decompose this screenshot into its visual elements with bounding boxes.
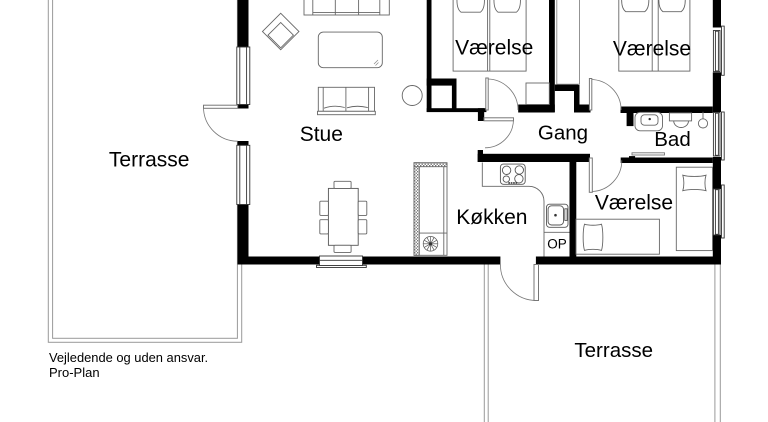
svg-text:Bad: Bad xyxy=(654,128,690,151)
svg-text:Værelse: Værelse xyxy=(595,191,673,214)
svg-text:OP: OP xyxy=(547,236,567,251)
svg-text:Gang: Gang xyxy=(538,122,588,145)
svg-text:Køkken: Køkken xyxy=(456,206,527,229)
svg-text:Terrasse: Terrasse xyxy=(574,339,653,362)
svg-text:Pro-Plan: Pro-Plan xyxy=(49,365,100,380)
svg-text:Værelse: Værelse xyxy=(613,38,691,61)
svg-text:Værelse: Værelse xyxy=(455,37,533,60)
svg-text:Terrasse: Terrasse xyxy=(109,149,190,172)
svg-text:Stue: Stue xyxy=(300,123,343,146)
svg-text:Vejledende og uden ansvar.: Vejledende og uden ansvar. xyxy=(49,350,208,365)
